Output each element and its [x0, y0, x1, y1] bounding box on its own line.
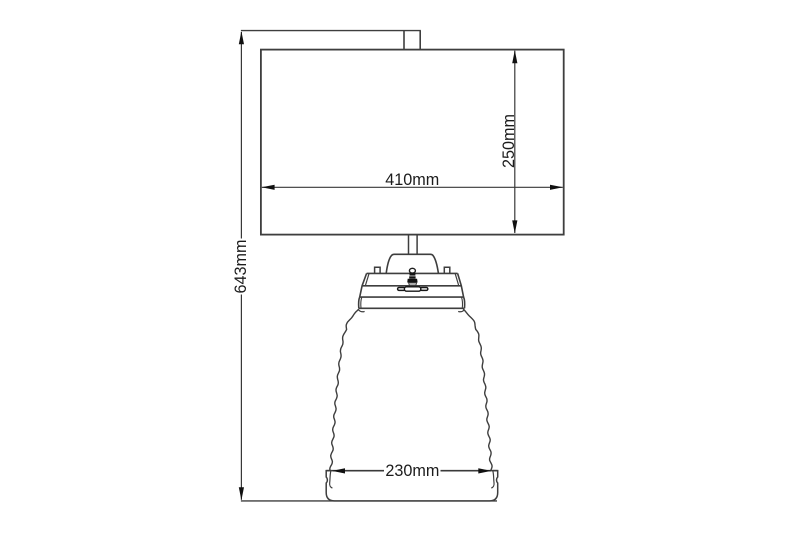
svg-text:230mm: 230mm [385, 462, 439, 480]
svg-text:410mm: 410mm [385, 171, 439, 189]
svg-text:643mm: 643mm [232, 240, 250, 294]
svg-text:250mm: 250mm [500, 114, 518, 168]
